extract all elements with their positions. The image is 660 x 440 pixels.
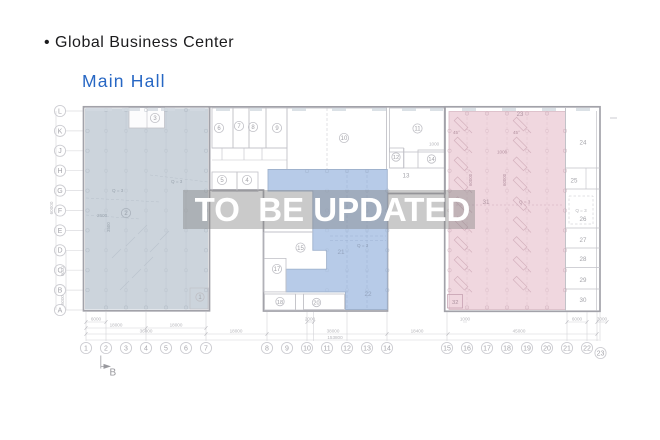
svg-text:1000: 1000 — [429, 142, 440, 147]
svg-text:17: 17 — [274, 267, 281, 273]
svg-text:3500: 3500 — [106, 222, 111, 232]
svg-text:18000: 18000 — [170, 323, 183, 328]
svg-text:60000: 60000 — [49, 201, 54, 214]
svg-text:23: 23 — [517, 112, 524, 118]
svg-text:2000: 2000 — [305, 317, 316, 322]
svg-text:1000: 1000 — [460, 317, 471, 322]
svg-text:32: 32 — [452, 300, 458, 306]
svg-text:15: 15 — [443, 345, 451, 352]
svg-text:E: E — [58, 228, 63, 235]
svg-text:18000: 18000 — [110, 323, 123, 328]
svg-text:22: 22 — [583, 345, 591, 352]
svg-text:1: 1 — [84, 345, 88, 352]
svg-text:K: K — [58, 128, 63, 135]
svg-text:36000: 36000 — [140, 329, 153, 334]
svg-text:18400: 18400 — [411, 329, 424, 334]
svg-text:21: 21 — [563, 345, 571, 352]
svg-text:20: 20 — [313, 301, 319, 307]
svg-text:26: 26 — [580, 216, 587, 223]
svg-text:4: 4 — [144, 345, 148, 352]
svg-text:153800: 153800 — [327, 335, 343, 340]
svg-text:5: 5 — [164, 345, 168, 352]
svg-text:45°: 45° — [453, 130, 460, 135]
svg-text:D: D — [57, 248, 62, 255]
svg-text:7: 7 — [237, 124, 241, 130]
svg-text:6000: 6000 — [572, 317, 583, 322]
svg-text:6000: 6000 — [60, 295, 65, 305]
svg-text:16: 16 — [463, 345, 471, 352]
svg-text:H: H — [57, 168, 62, 175]
svg-text:6: 6 — [184, 345, 188, 352]
svg-text:8: 8 — [265, 345, 269, 352]
svg-text:13: 13 — [403, 173, 410, 180]
svg-text:3: 3 — [124, 345, 128, 352]
svg-text:23: 23 — [597, 350, 605, 357]
svg-text:18: 18 — [503, 345, 511, 352]
svg-text:13: 13 — [363, 345, 371, 352]
svg-text:18: 18 — [277, 300, 283, 306]
svg-text:24: 24 — [580, 140, 587, 147]
svg-text:60000: 60000 — [468, 173, 473, 186]
svg-text:45°: 45° — [513, 130, 520, 135]
svg-text:A: A — [58, 307, 63, 314]
svg-text:17: 17 — [483, 345, 491, 352]
svg-text:7: 7 — [204, 345, 208, 352]
svg-text:J: J — [58, 148, 62, 155]
svg-text:18000: 18000 — [230, 329, 243, 334]
svg-text:10: 10 — [303, 345, 311, 352]
svg-text:9: 9 — [275, 126, 279, 132]
svg-text:14: 14 — [428, 157, 434, 163]
svg-text:8: 8 — [251, 125, 255, 131]
svg-text:B: B — [58, 288, 63, 295]
svg-text:3000: 3000 — [597, 317, 608, 322]
svg-text:11: 11 — [323, 345, 330, 352]
svg-text:14: 14 — [383, 345, 391, 352]
svg-text:29: 29 — [580, 277, 587, 284]
svg-text:30: 30 — [580, 297, 587, 304]
svg-text:Q = 3: Q = 3 — [575, 208, 587, 213]
svg-text:21: 21 — [337, 249, 345, 256]
svg-text:6000: 6000 — [91, 317, 102, 322]
svg-text:Q = 3: Q = 3 — [519, 200, 531, 205]
svg-text:6000: 6000 — [60, 266, 65, 276]
svg-text:28: 28 — [580, 256, 587, 263]
svg-text:45000: 45000 — [513, 329, 526, 334]
svg-text:6: 6 — [217, 126, 221, 132]
svg-text:F: F — [58, 208, 62, 215]
svg-text:Q = 3: Q = 3 — [171, 179, 183, 184]
svg-text:10: 10 — [341, 136, 348, 142]
svg-text:60000: 60000 — [502, 173, 507, 186]
svg-text:12: 12 — [343, 345, 351, 352]
svg-text:22: 22 — [364, 291, 372, 298]
svg-text:5: 5 — [220, 178, 224, 184]
svg-text:G: G — [57, 188, 62, 195]
svg-text:25: 25 — [571, 178, 578, 185]
svg-text:38000: 38000 — [327, 329, 340, 334]
svg-text:27: 27 — [580, 237, 587, 244]
svg-text:Q = 3: Q = 3 — [357, 243, 369, 248]
svg-text:Q = 3: Q = 3 — [112, 188, 124, 193]
svg-text:L: L — [58, 108, 62, 115]
svg-text:2: 2 — [104, 345, 108, 352]
svg-text:9: 9 — [285, 345, 289, 352]
svg-text:12: 12 — [393, 155, 399, 161]
svg-text:2600: 2600 — [97, 213, 108, 218]
svg-text:19: 19 — [523, 345, 531, 352]
svg-text:4: 4 — [245, 178, 249, 184]
svg-text:B: B — [110, 368, 117, 379]
svg-text:15: 15 — [297, 246, 304, 252]
svg-text:20: 20 — [543, 345, 551, 352]
svg-text:11: 11 — [414, 127, 421, 133]
